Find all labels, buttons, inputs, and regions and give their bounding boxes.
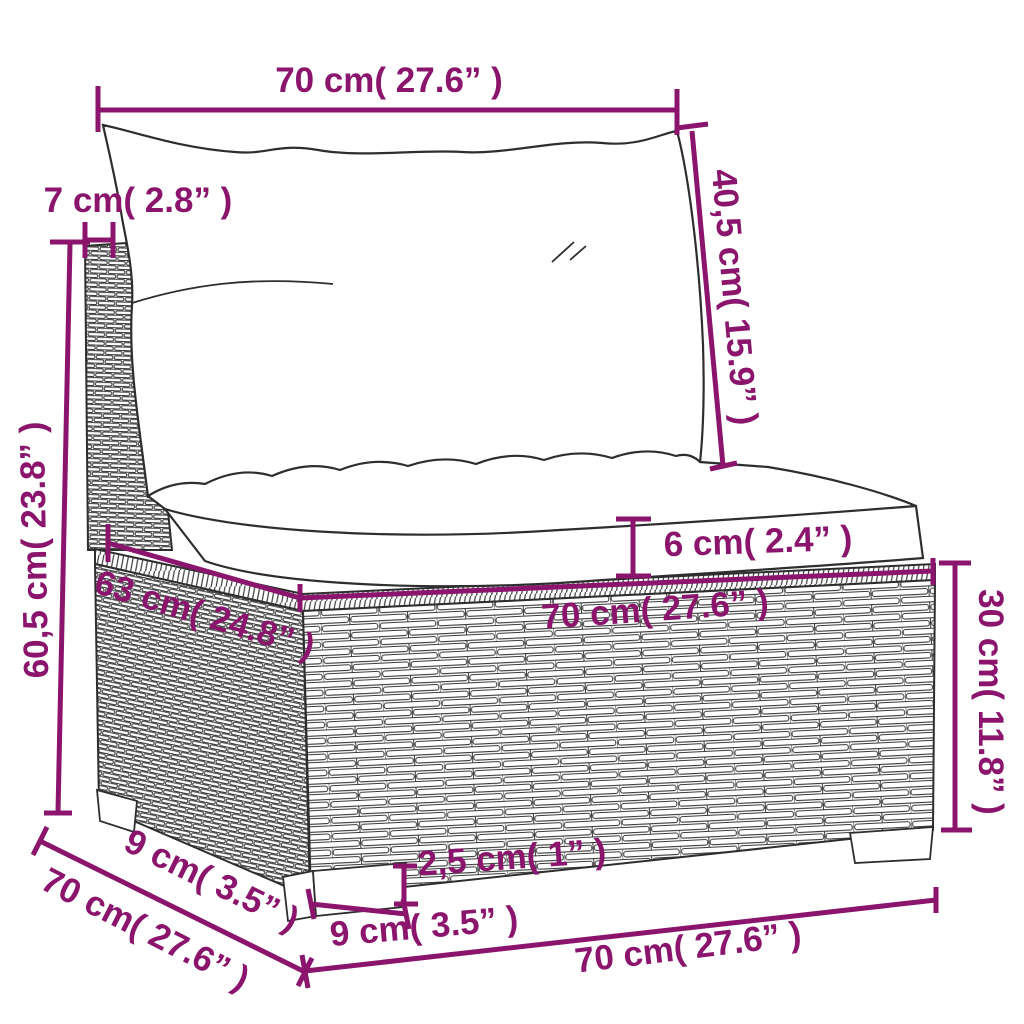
dim-base-width-label: 70 cm( 27.6” ) (573, 914, 804, 980)
dim-back-cushion-height-label: 40,5 cm( 15.9” ) (704, 167, 765, 426)
dim-top-width: 70 cm( 27.6” ) (98, 61, 677, 135)
foot-front-right (850, 827, 933, 863)
dim-top-width-label: 70 cm( 27.6” ) (275, 61, 503, 100)
dim-cushion-thickness-label: 6 cm( 2.4” ) (663, 519, 853, 565)
dim-base-height: 30 cm( 11.8” ) (939, 563, 1010, 830)
dim-back-frame-depth-label: 7 cm( 2.8” ) (44, 181, 233, 220)
dim-base-height-label: 30 cm( 11.8” ) (971, 589, 1010, 815)
dimension-diagram-page: 70 cm( 27.6” ) 40,5 cm( 15.9” ) 7 cm( 2.… (0, 0, 1024, 1024)
dim-total-height-label: 60,5 cm( 23.8” ) (13, 421, 56, 678)
dim-total-height: 60,5 cm( 23.8” ) (13, 242, 90, 813)
sofa-dimension-diagram: 70 cm( 27.6” ) 40,5 cm( 15.9” ) 7 cm( 2.… (0, 0, 1024, 1024)
dim-base-height-line (939, 563, 972, 830)
